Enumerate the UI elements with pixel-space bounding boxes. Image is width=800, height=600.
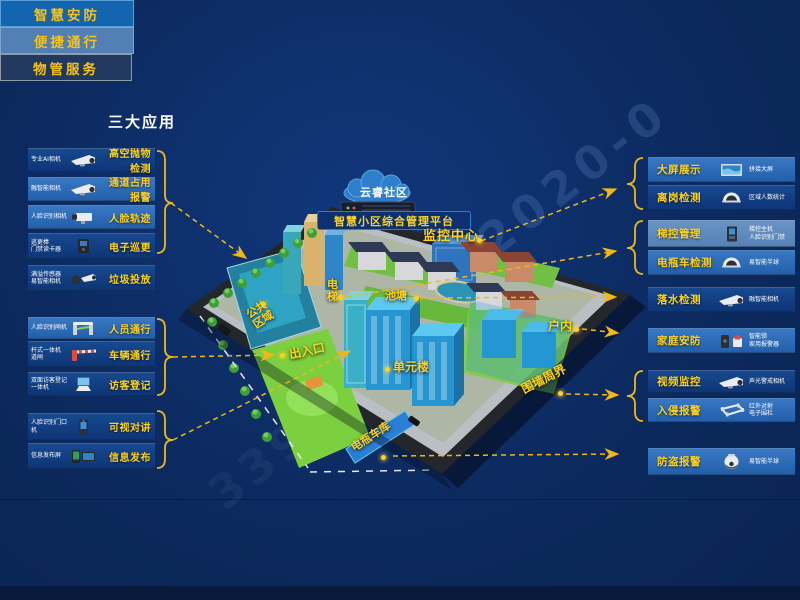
box-camera-icon: [67, 208, 99, 226]
map-dot-pond: [414, 296, 419, 301]
dome-camera-icon: [715, 189, 747, 207]
panel-row-ebike-detect: 电瓶车检测 易智能半球: [648, 250, 795, 275]
map-label-indoor: 户内: [548, 320, 572, 333]
panel-row-info-publish: 信息发布屏 信息发布: [28, 443, 155, 469]
map-dot-bike-garage: [381, 455, 386, 460]
panel-row-drown-detect: 落水检测 融智能相机: [648, 287, 795, 312]
elevator-panel-icon: [715, 225, 747, 243]
visitor-kiosk-icon: [67, 375, 99, 393]
panel-row-vehicle: 杆式一体机道闸 车辆通行: [28, 341, 155, 367]
door-station-icon: [67, 418, 99, 436]
panel-row-burglar-alarm: 防盗报警 易智能半球: [648, 448, 795, 475]
turnstile-icon: [67, 319, 99, 337]
panel-row-channel-alarm: 融智能相机 通道占用报警: [28, 177, 155, 201]
map-label-monitor-center: 监控中心: [423, 230, 479, 244]
panel-row-pedestrian: 人脸识别闸机 人员通行: [28, 317, 155, 339]
dome-camera-icon: [715, 254, 747, 272]
bottom-band: [0, 586, 800, 600]
bullet-camera-icon: [715, 291, 747, 309]
device-label: 专业AI相机: [31, 156, 67, 164]
smart-community-diagram: 2020-0 339: [0, 0, 800, 600]
turret-camera-icon: [715, 453, 747, 471]
panel-row-intercom: 人脸识别门口机 可视对讲: [28, 413, 155, 440]
panel-row-offpost-detect: 离岗检测 区域人数统计: [648, 185, 795, 210]
panel-row-garbage: 满溢传感器易智能相机 垃圾投放: [28, 265, 155, 291]
panel-row-intrusion-alarm: 入侵报警 红外对射电子围栏: [648, 398, 795, 422]
panel-row-home-security: 家庭安防 智能锁家用报警器: [648, 328, 795, 353]
divider-line: [0, 499, 800, 500]
panel-row-face-track: 人脸识别相机 人脸轨迹: [28, 205, 155, 229]
panel-row-throw-detect: 专业AI相机 高空抛物检测: [28, 148, 155, 172]
feature-label: 高空抛物检测: [99, 145, 151, 175]
bullet-camera-icon: [67, 180, 99, 198]
panel-row-elevator-control: 梯控管理 梯控主机人脸识别门禁: [648, 220, 795, 247]
map-label-cloud: 云睿社区: [352, 184, 416, 200]
map-label-elevator: 电梯: [327, 279, 340, 303]
map-dot-public-area: [261, 302, 266, 307]
map-dot-monitor-center: [477, 238, 482, 243]
barrier-gate-icon: [67, 345, 99, 363]
map-label-platform: 智慧小区综合管理平台: [317, 211, 471, 230]
map-dot-entrance: [280, 353, 285, 358]
perimeter-fence-icon: [715, 401, 747, 419]
map-dot-unit-building: [385, 367, 390, 372]
sensor-camera-icon: [67, 269, 99, 287]
map-dot-elevator: [338, 295, 343, 300]
panel-row-video-surveillance: 视频监控 声光警戒相机: [648, 370, 795, 393]
panel-row-visitor: 双面访客登记一体机 访客登记: [28, 372, 155, 396]
video-wall-icon: [715, 161, 747, 179]
lock-siren-icon: [715, 332, 747, 350]
map-label-pond: 池塘: [385, 290, 407, 302]
bullet-camera-icon: [67, 151, 99, 169]
page-title: 三大应用: [108, 111, 176, 132]
map-dot-indoor: [574, 327, 579, 332]
card-reader-icon: [67, 237, 99, 255]
map-dot-perimeter: [558, 391, 563, 396]
bullet-camera-icon: [715, 373, 747, 391]
panel-row-video-wall: 大屏展示 拼接大屏: [648, 157, 795, 182]
panel-row-patrol: 巡更棒门禁读卡器 电子巡更: [28, 233, 155, 259]
info-screens-icon: [67, 447, 99, 465]
map-label-unit-building: 单元楼: [393, 361, 429, 374]
